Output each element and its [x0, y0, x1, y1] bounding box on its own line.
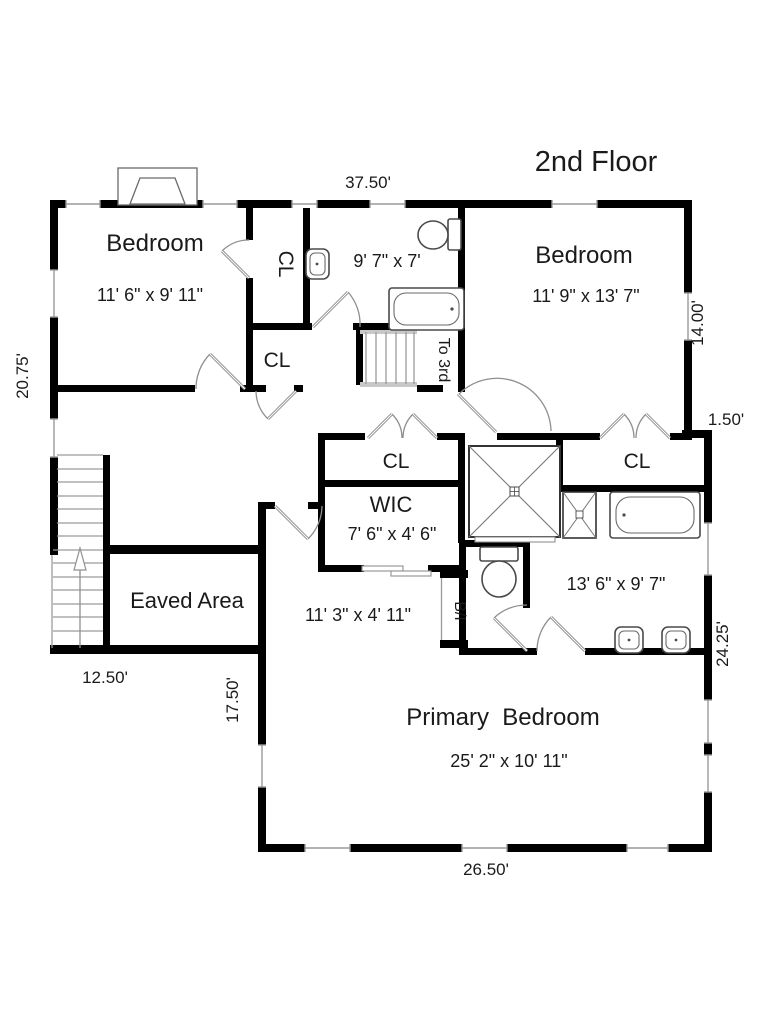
window [627, 844, 668, 852]
dim-right-lower: 24.25' [713, 621, 732, 667]
closet-label-bedroom2: CL [624, 450, 651, 473]
dim-right-jog: 1.50' [708, 410, 744, 429]
room-label-eaved-area: Eaved Area [130, 588, 245, 613]
window [462, 844, 507, 852]
dim-bottom-width: 26.50' [463, 860, 509, 879]
closet-label-hall: CL [383, 450, 410, 473]
door-cl-hall [368, 414, 437, 438]
door-cl-lower [256, 391, 296, 419]
sink-icon [615, 627, 643, 653]
toilet-icon [418, 219, 461, 250]
window [292, 200, 317, 208]
wic-sliding-doors [362, 566, 431, 576]
window [704, 755, 712, 792]
room-label-bedroom1: Bedroom [106, 230, 203, 257]
staircase-main [52, 455, 103, 648]
door-hall-bath [313, 292, 360, 327]
stairs-up-arrow [74, 548, 86, 648]
room-label-bedroom2: Bedroom [535, 242, 632, 269]
window [66, 200, 100, 208]
window [704, 523, 712, 575]
primary-bath-fixtures [442, 446, 701, 653]
door-bedroom2 [458, 378, 551, 432]
floor-plan-page: 2nd Floor Bedroom 11' 6" x 9' 11" Bedroo… [0, 0, 768, 1024]
dim-primary-left: 17.50' [223, 677, 242, 723]
dim-stairs-width: 12.50' [82, 668, 128, 687]
window [203, 200, 237, 208]
window [552, 200, 597, 208]
linen-cabinet-icon [563, 492, 596, 538]
room-dims-hall-bath: 9' 7" x 7' [353, 251, 420, 271]
staircase-to-3rd [360, 330, 417, 387]
bathtub-icon [389, 288, 464, 330]
room-dims-bedroom2: 11' 9" x 13' 7" [532, 286, 639, 306]
door-cl-upper [222, 240, 249, 278]
door-toilet-room [494, 605, 527, 651]
built-in-label: B/I [451, 601, 468, 621]
sink-icon [306, 249, 329, 279]
dim-left-upper: 20.75' [13, 353, 32, 399]
window [704, 700, 712, 743]
door-cl-bedroom2 [600, 414, 670, 438]
window [50, 270, 58, 317]
window [258, 745, 266, 787]
door-primary-suite [275, 506, 322, 539]
hall-bath-fixtures [306, 219, 464, 330]
dim-right-bedroom2: 14.00' [688, 300, 707, 346]
closet-label-upper: CL [274, 251, 297, 278]
room-label-wic: WIC [370, 492, 413, 517]
door-bedroom1 [196, 354, 245, 389]
toilet-icon [480, 547, 518, 597]
sink-icon [662, 627, 690, 653]
page-title: 2nd Floor [535, 146, 658, 178]
floor-plan-drawing: 2nd Floor Bedroom 11' 6" x 9' 11" Bedroo… [0, 0, 768, 1024]
window [370, 200, 405, 208]
dim-top-width: 37.50' [345, 173, 391, 192]
bathtub-icon [610, 492, 700, 538]
room-dims-bedroom1: 11' 6" x 9' 11" [97, 285, 203, 305]
closet-label-lower: CL [264, 349, 291, 372]
shower-icon [469, 446, 560, 542]
room-dims-primary-bedroom: 25' 2" x 10' 11" [450, 751, 567, 771]
room-label-primary-bedroom: Primary Bedroom [406, 704, 599, 731]
room-dims-wic: 7' 6" x 4' 6" [348, 524, 437, 544]
bay-window [118, 168, 197, 205]
window [305, 844, 350, 852]
room-dims-suite-hall: 11' 3" x 4' 11" [305, 605, 411, 625]
stairs-up-label: To 3rd [435, 338, 452, 382]
window [50, 419, 58, 457]
door-primary-bath [537, 617, 585, 651]
room-dims-primary-bath: 13' 6" x 9' 7" [567, 574, 666, 594]
